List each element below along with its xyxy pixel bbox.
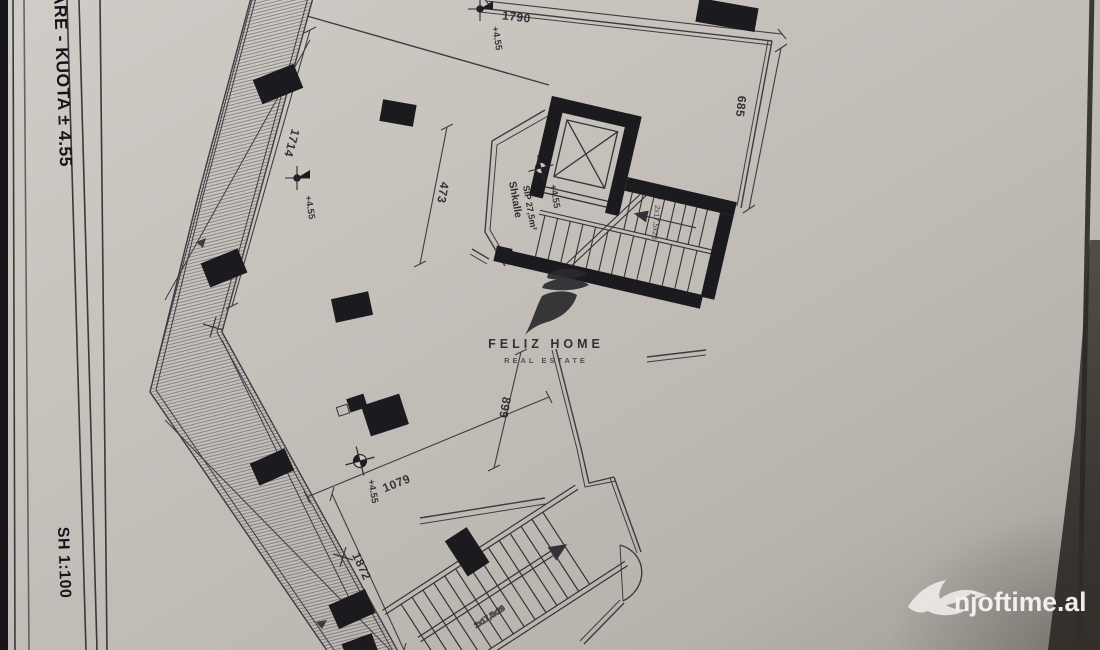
floor-plan-canvas: ARE - KUOTA ± 4.55 SH 1:100 xyxy=(0,0,1100,650)
floor-plan-photo: ARE - KUOTA ± 4.55 SH 1:100 xyxy=(0,0,1100,650)
vignette-overlay xyxy=(0,0,1100,650)
